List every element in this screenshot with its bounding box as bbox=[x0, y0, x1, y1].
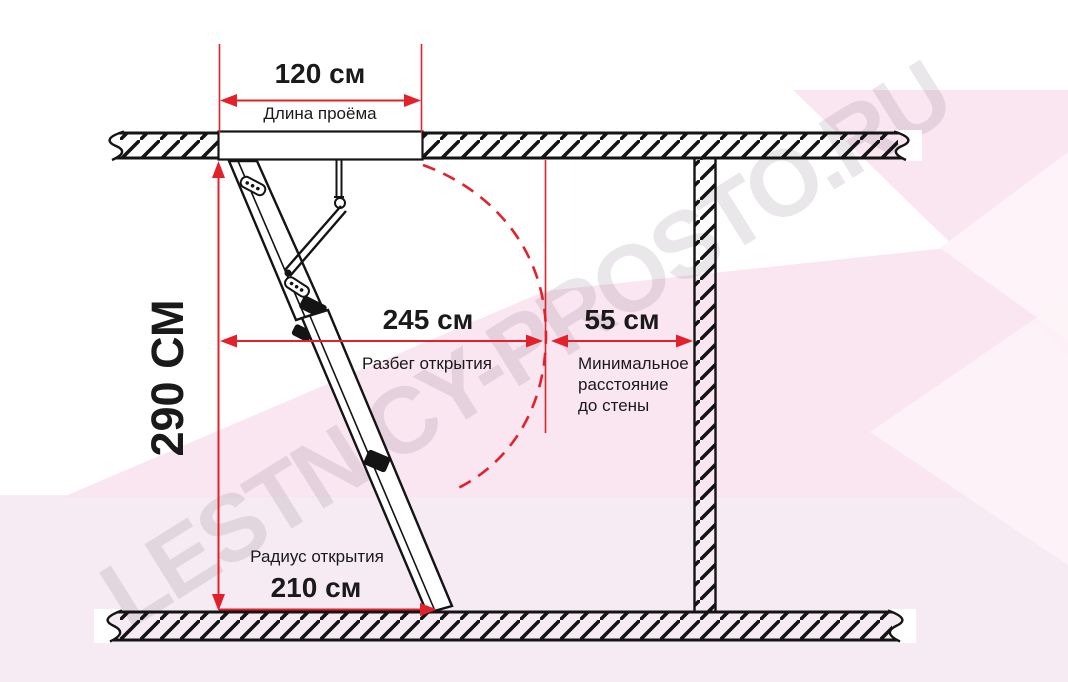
wall bbox=[695, 158, 716, 612]
dim-label-opening-radius: Радиус открытия bbox=[250, 547, 384, 567]
dim-value-245: 245 см bbox=[383, 304, 474, 336]
ceiling-opening bbox=[219, 132, 423, 160]
ladder-hanger-rod bbox=[334, 159, 345, 208]
dim-value-290: 290 СМ bbox=[142, 300, 194, 457]
dim-wall-clearance-55 bbox=[551, 335, 693, 348]
floor bbox=[94, 609, 916, 643]
dim-label-opening-length: Длина проёма bbox=[263, 104, 376, 124]
dim-value-120: 120 см bbox=[275, 58, 366, 90]
dim-ceiling-height-290 bbox=[212, 161, 225, 611]
ceiling bbox=[96, 130, 922, 161]
attic-ladder-dimension-diagram: LESTNICY-PROSTO.RU bbox=[0, 0, 1068, 682]
dim-label-wall-clearance: Минимальное расстояние до стены bbox=[578, 353, 689, 416]
dim-opening-run-245 bbox=[220, 335, 543, 348]
folding-ladder bbox=[229, 159, 452, 613]
dim-value-210: 210 см bbox=[271, 572, 362, 604]
dim-value-55: 55 см bbox=[584, 304, 659, 336]
dim-label-opening-run: Разбег открытия bbox=[362, 354, 492, 374]
